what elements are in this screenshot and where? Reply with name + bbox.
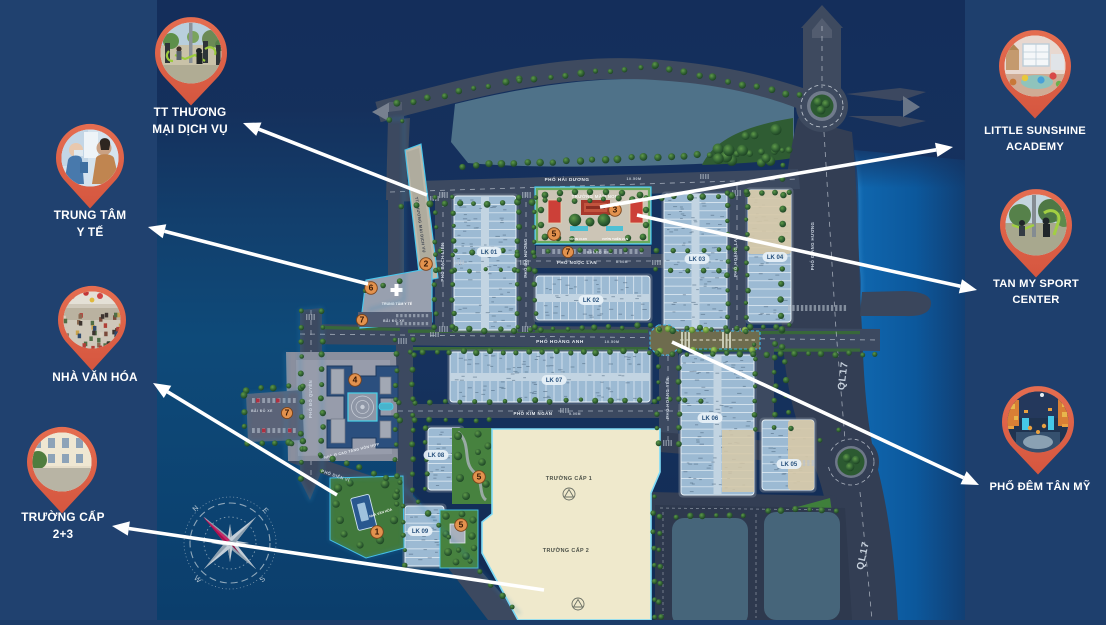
svg-text:PHỐ HẢI DƯƠNG: PHỐ HẢI DƯƠNG [545,176,590,182]
svg-text:TRƯỜNG CẤP 1: TRƯỜNG CẤP 1 [546,474,592,482]
svg-text:CENTER: CENTER [1012,294,1059,306]
svg-text:8.00M: 8.00M [616,260,628,264]
svg-text:LK 01: LK 01 [481,250,498,256]
svg-text:LK 04: LK 04 [767,255,784,261]
svg-text:PHỐ DẠ HƯƠNG: PHỐ DẠ HƯƠNG [523,238,528,278]
svg-text:4: 4 [353,375,358,385]
svg-text:5: 5 [552,229,557,239]
svg-text:ACADEMY: ACADEMY [1006,141,1064,153]
svg-text:10.50M: 10.50M [605,340,620,344]
svg-text:LITTLE SUNSHINE: LITTLE SUNSHINE [984,125,1086,137]
svg-text:2+3: 2+3 [53,527,74,541]
svg-text:VƯỜN CHƠI: VƯỜN CHƠI [569,236,587,241]
svg-text:7: 7 [285,408,290,418]
svg-text:PHỐ KIM NGÂN: PHỐ KIM NGÂN [514,411,553,416]
svg-text:TRƯỜNG CẤP 2: TRƯỜNG CẤP 2 [543,546,589,554]
svg-text:BÃI ĐỖ XE: BÃI ĐỖ XE [587,250,610,255]
svg-text:LK 08: LK 08 [428,453,445,459]
svg-text:PHỐ HOÀNG LAN: PHỐ HOÀNG LAN [733,235,738,277]
svg-text:PHỐ GIANG HƯƠNG: PHỐ GIANG HƯƠNG [810,221,815,270]
svg-text:6: 6 [369,283,374,293]
svg-text:PHỐ NGỌC LAN: PHỐ NGỌC LAN [557,260,597,265]
svg-text:TRUNG TÂM: TRUNG TÂM [54,208,127,222]
svg-text:TRƯỜNG MẦM NON: TRƯỜNG MẦM NON [572,194,619,199]
svg-text:LK 02: LK 02 [583,298,600,304]
svg-text:1: 1 [375,527,380,537]
svg-text:PHỐ ĐỖ QUYÊN: PHỐ ĐỖ QUYÊN [308,380,313,418]
svg-text:BÃI ĐỖ XE: BÃI ĐỖ XE [383,318,405,323]
svg-text:TT THƯƠNG: TT THƯƠNG [154,105,227,119]
svg-text:PHỐ HOÀNG YẾN: PHỐ HOÀNG YẾN [665,377,670,419]
svg-text:TAN MY SPORT: TAN MY SPORT [993,278,1079,290]
svg-text:LK 06: LK 06 [702,416,719,422]
svg-text:VƯỜN THIÊN VĂN: VƯỜN THIÊN VĂN [602,236,628,241]
svg-text:LK 05: LK 05 [781,462,798,468]
svg-text:PHỐ ĐÊM TÂN MỸ: PHỐ ĐÊM TÂN MỸ [989,479,1090,493]
svg-text:7: 7 [360,315,365,325]
svg-text:LK 09: LK 09 [412,529,429,535]
svg-text:BÃI ĐỖ XE: BÃI ĐỖ XE [251,408,273,413]
svg-text:7: 7 [566,247,571,257]
svg-text:LK 03: LK 03 [689,257,706,263]
svg-text:TRƯỜNG CẤP: TRƯỜNG CẤP [21,510,104,524]
svg-text:NHÀ VĂN HÓA: NHÀ VĂN HÓA [52,370,138,384]
svg-text:PHỐ HOÀNG ANH: PHỐ HOÀNG ANH [536,338,584,345]
svg-text:2: 2 [424,259,429,269]
svg-text:LK 07: LK 07 [546,378,563,384]
svg-text:5: 5 [459,520,464,530]
svg-text:MẠI DỊCH VỤ: MẠI DỊCH VỤ [152,122,228,136]
svg-text:5.00M: 5.00M [569,412,581,416]
svg-text:10.50M: 10.50M [627,177,642,181]
svg-text:Y TẾ: Y TẾ [77,225,104,239]
svg-text:5: 5 [477,472,482,482]
svg-text:PHỐ BẠCH LIÊN: PHỐ BẠCH LIÊN [440,242,445,281]
